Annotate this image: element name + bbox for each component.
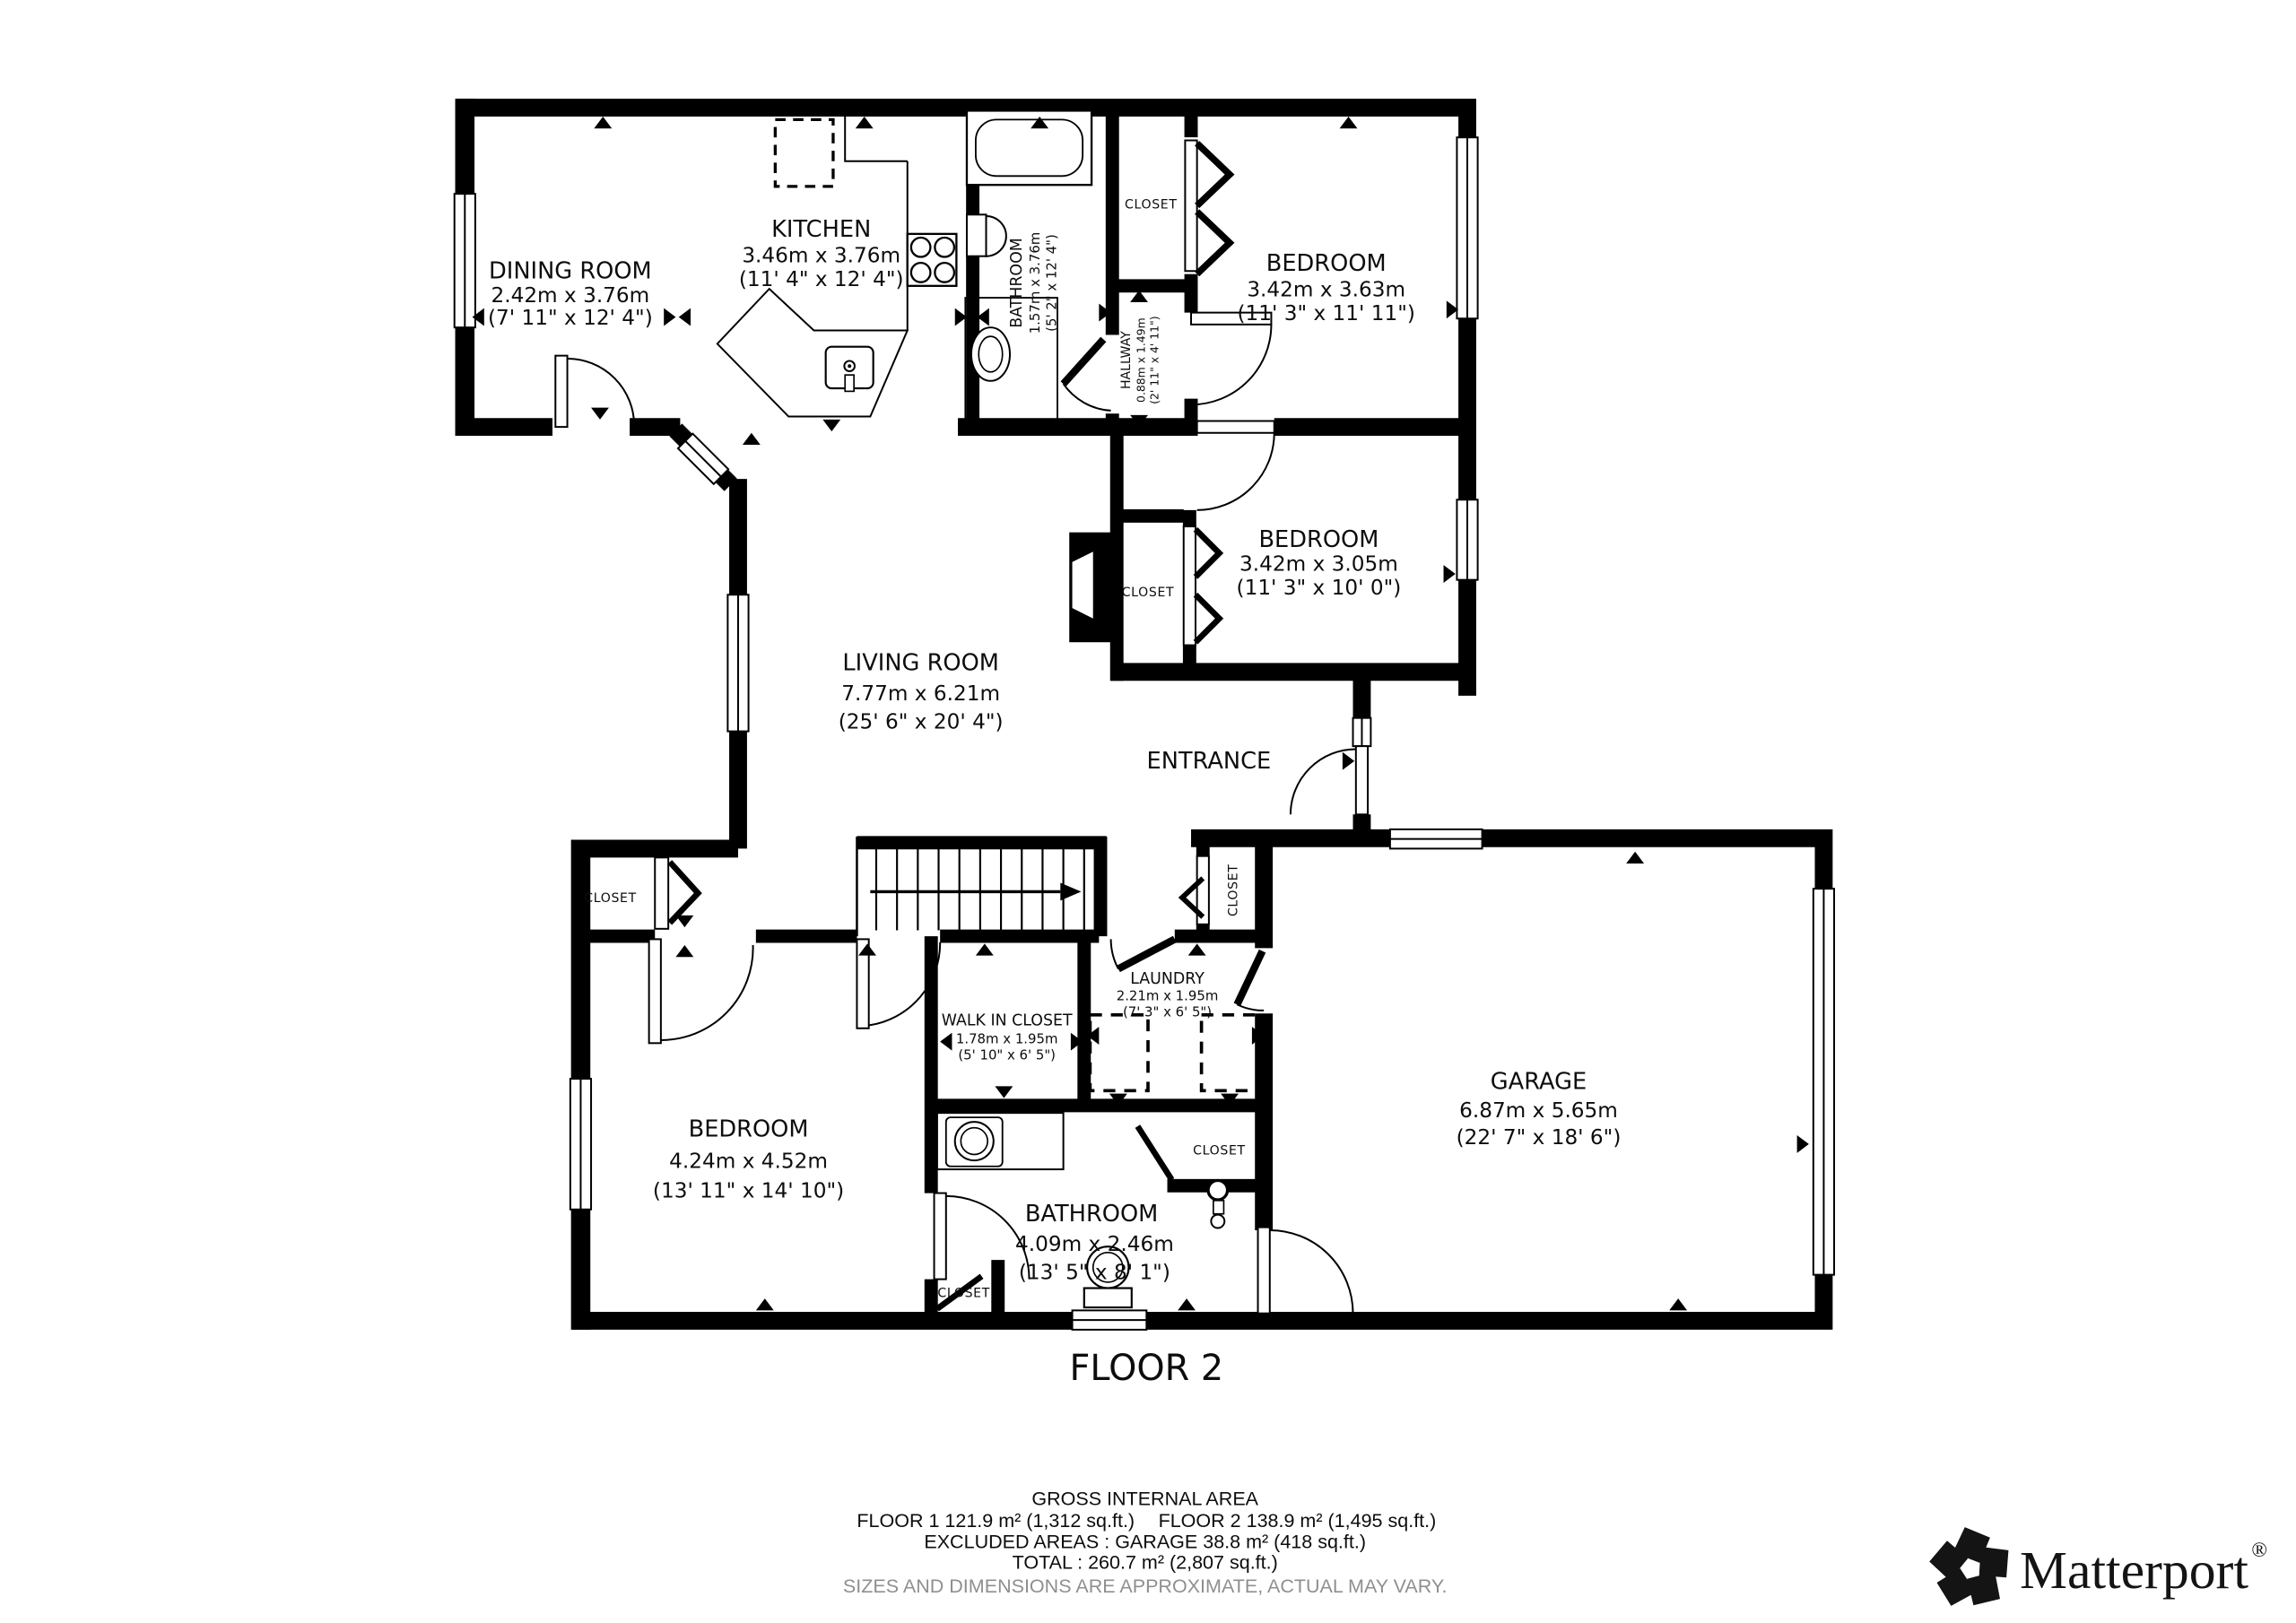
walk-in-closet-metric: 1.78m x 1.95m	[956, 1030, 1058, 1046]
stove	[908, 234, 957, 286]
room-label-bathroom-bottom: BATHROOM 4.09m x 2.46m (13' 5" x 8' 1")	[1015, 1201, 1174, 1285]
door-closet-mid	[1184, 526, 1220, 645]
window-bedroom2	[1457, 499, 1477, 579]
total-area-text: TOTAL : 260.7 m² (2,807 sq.ft.)	[1013, 1552, 1278, 1574]
window-diagonal	[678, 434, 728, 484]
bedroom2-name: BEDROOM	[1258, 526, 1378, 553]
walk-in-closet-imperial: (5' 10" x 6' 5")	[958, 1047, 1056, 1063]
hallway-metric: 0.88m x 1.49m	[1135, 317, 1148, 403]
bedroom1-name: BEDROOM	[1266, 250, 1387, 277]
stairs-arrowhead-icon	[1060, 882, 1081, 900]
hallway-name: HALLWAY	[1119, 331, 1134, 389]
door-bedroom2	[1197, 421, 1274, 510]
door-closet-right	[1182, 856, 1209, 924]
kitchen-sink	[826, 347, 874, 392]
bedroom1-metric: 3.42m x 3.63m	[1247, 277, 1405, 301]
window-garage-top	[1390, 829, 1483, 849]
room-label-hallway: HALLWAY 0.88m x 1.49m (2' 11" x 4' 11")	[1119, 316, 1161, 404]
room-label-dining-room: DINING ROOM 2.42m x 3.76m (7' 11" x 12' …	[488, 258, 653, 330]
room-label-bedroom-1: BEDROOM 3.42m x 3.63m (11' 3" x 11' 11")	[1237, 250, 1415, 325]
door-laundry-garage	[1237, 951, 1264, 1011]
disclaimer-text: SIZES AND DIMENSIONS ARE APPROXIMATE, AC…	[843, 1575, 1448, 1597]
hose-bib	[1208, 1180, 1228, 1228]
floor-plan-page: DINING ROOM 2.42m x 3.76m (7' 11" x 12' …	[0, 0, 2296, 1623]
garage-imperial: (22' 7" x 18' 6")	[1457, 1125, 1622, 1150]
window-bedroom1	[1457, 137, 1477, 318]
dining-room-name: DINING ROOM	[489, 258, 652, 285]
room-labels: DINING ROOM 2.42m x 3.76m (7' 11" x 12' …	[488, 198, 1621, 1301]
kitchen-metric: 3.46m x 3.76m	[742, 243, 900, 267]
walk-in-closet-name: WALK IN CLOSET	[942, 1011, 1073, 1029]
door-closet-top	[1184, 137, 1230, 273]
closet-mid-label: CLOSET	[1122, 586, 1175, 600]
window-bathroom-bottom	[1073, 1310, 1147, 1330]
door-bath-closet	[1137, 1126, 1171, 1180]
window-garage-door	[1813, 889, 1834, 1275]
bathroom-top-name: BATHROOM	[1008, 238, 1026, 328]
door-dining	[555, 356, 634, 427]
bathroom-bottom-metric: 4.09m x 2.46m	[1015, 1232, 1174, 1256]
door-closet-left	[655, 857, 698, 928]
bedroom2-imperial: (11' 3" x 10' 0")	[1237, 576, 1402, 600]
kitchen-peninsula	[717, 289, 908, 416]
living-room-name: LIVING ROOM	[842, 650, 999, 677]
floor-title: FLOOR 2	[1070, 1348, 1224, 1389]
excluded-areas-text: EXCLUDED AREAS : GARAGE 38.8 m² (418 sq.…	[924, 1531, 1366, 1552]
closet-top-label: CLOSET	[1125, 198, 1178, 213]
entrance-label: ENTRANCE	[1147, 748, 1272, 775]
door-garage	[1258, 1228, 1353, 1314]
plan-footer: FLOOR 2 GROSS INTERNAL AREA FLOOR 1 121.…	[843, 1348, 1448, 1597]
kitchen-pantry-dashed	[775, 119, 833, 187]
gross-internal-area-title: GROSS INTERNAL AREA	[1031, 1488, 1258, 1509]
room-label-garage: GARAGE 6.87m x 5.65m (22' 7" x 18' 6")	[1457, 1069, 1622, 1150]
floor2-area-text: FLOOR 2 138.9 m² (1,495 sq.ft.)	[1159, 1510, 1437, 1532]
room-label-kitchen: KITCHEN 3.46m x 3.76m (11' 4" x 12' 4")	[739, 216, 904, 291]
living-room-metric: 7.77m x 6.21m	[841, 681, 1000, 706]
window-living	[727, 595, 748, 731]
living-room-imperial: (25' 6" x 20' 4")	[839, 709, 1004, 733]
room-label-walk-in-closet: WALK IN CLOSET 1.78m x 1.95m (5' 10" x 6…	[942, 1011, 1073, 1063]
registered-trademark-icon: ®	[2251, 1539, 2267, 1562]
window-bedroom3	[570, 1079, 591, 1210]
room-label-laundry: LAUNDRY 2.21m x 1.95m (7' 3" x 6' 5")	[1117, 970, 1219, 1020]
bedroom3-metric: 4.24m x 4.52m	[669, 1149, 828, 1173]
matterport-wordmark: Matterport	[2020, 1541, 2248, 1600]
bedroom3-imperial: (13' 11" x 14' 10")	[653, 1179, 844, 1203]
closet-left-label: CLOSET	[584, 891, 637, 906]
branding: Matterport ®	[1926, 1527, 2267, 1614]
window-entrance	[1353, 718, 1371, 746]
door-laundry	[1111, 939, 1175, 968]
closet-bath-label: CLOSET	[1193, 1144, 1246, 1159]
bedroom3-name: BEDROOM	[689, 1116, 809, 1143]
walls	[456, 99, 1832, 1330]
laundry-name: LAUNDRY	[1130, 970, 1205, 988]
fireplace-notch	[1073, 551, 1093, 619]
windows	[455, 137, 1834, 1330]
door-bedroom3	[649, 939, 753, 1043]
laundry-metric: 2.21m x 1.95m	[1117, 987, 1219, 1003]
door-bedroom1	[1182, 313, 1271, 405]
garage-name: GARAGE	[1491, 1069, 1587, 1096]
laundry-imperial: (7' 3" x 6' 5")	[1123, 1004, 1212, 1020]
room-label-bathroom-top: BATHROOM 1.57m x 3.76m (5' 2" x 12' 4")	[1008, 232, 1059, 334]
dryer-dashed	[1202, 1015, 1260, 1090]
bathtub	[967, 110, 1091, 185]
bathroom-bottom-imperial: (13' 5" x 8' 1")	[1019, 1261, 1170, 1285]
dining-room-metric: 2.42m x 3.76m	[491, 283, 649, 308]
bathroom-top-imperial: (5' 2" x 12' 4")	[1043, 234, 1059, 332]
closet-bottom-label: CLOSET	[937, 1286, 990, 1300]
bathroom-bottom-name: BATHROOM	[1025, 1201, 1158, 1228]
room-label-bedroom-3: BEDROOM 4.24m x 4.52m (13' 11" x 14' 10"…	[653, 1116, 844, 1203]
kitchen-imperial: (11' 4" x 12' 4")	[739, 267, 904, 291]
toilet-top	[967, 214, 1006, 256]
garage-metric: 6.87m x 5.65m	[1459, 1098, 1618, 1123]
window-dining	[455, 194, 475, 327]
floor1-area-text: FLOOR 1 121.9 m² (1,312 sq.ft.)	[857, 1510, 1135, 1532]
door-entrance	[1291, 746, 1368, 814]
closet-right-label: CLOSET	[1226, 864, 1240, 916]
matterport-logo-icon	[1926, 1527, 2016, 1614]
hallway-imperial: (2' 11" x 4' 11")	[1148, 316, 1161, 404]
room-label-bedroom-2: BEDROOM 3.42m x 3.05m (11' 3" x 10' 0")	[1237, 526, 1402, 600]
bedroom2-metric: 3.42m x 3.05m	[1239, 552, 1398, 577]
washer-dashed	[1090, 1015, 1148, 1090]
bathroom-top-metric: 1.57m x 3.76m	[1027, 232, 1043, 334]
vanity-bottom	[937, 1113, 1064, 1169]
stairs	[870, 848, 1083, 930]
kitchen-name: KITCHEN	[771, 216, 871, 243]
room-label-living-room: LIVING ROOM 7.77m x 6.21m (25' 6" x 20' …	[839, 650, 1004, 734]
door-bathroom-top	[1064, 339, 1111, 410]
floor-plan-canvas: DINING ROOM 2.42m x 3.76m (7' 11" x 12' …	[0, 0, 2296, 1623]
bedroom1-imperial: (11' 3" x 11' 11")	[1237, 301, 1415, 325]
dining-room-imperial: (7' 11" x 12' 4")	[488, 306, 653, 330]
